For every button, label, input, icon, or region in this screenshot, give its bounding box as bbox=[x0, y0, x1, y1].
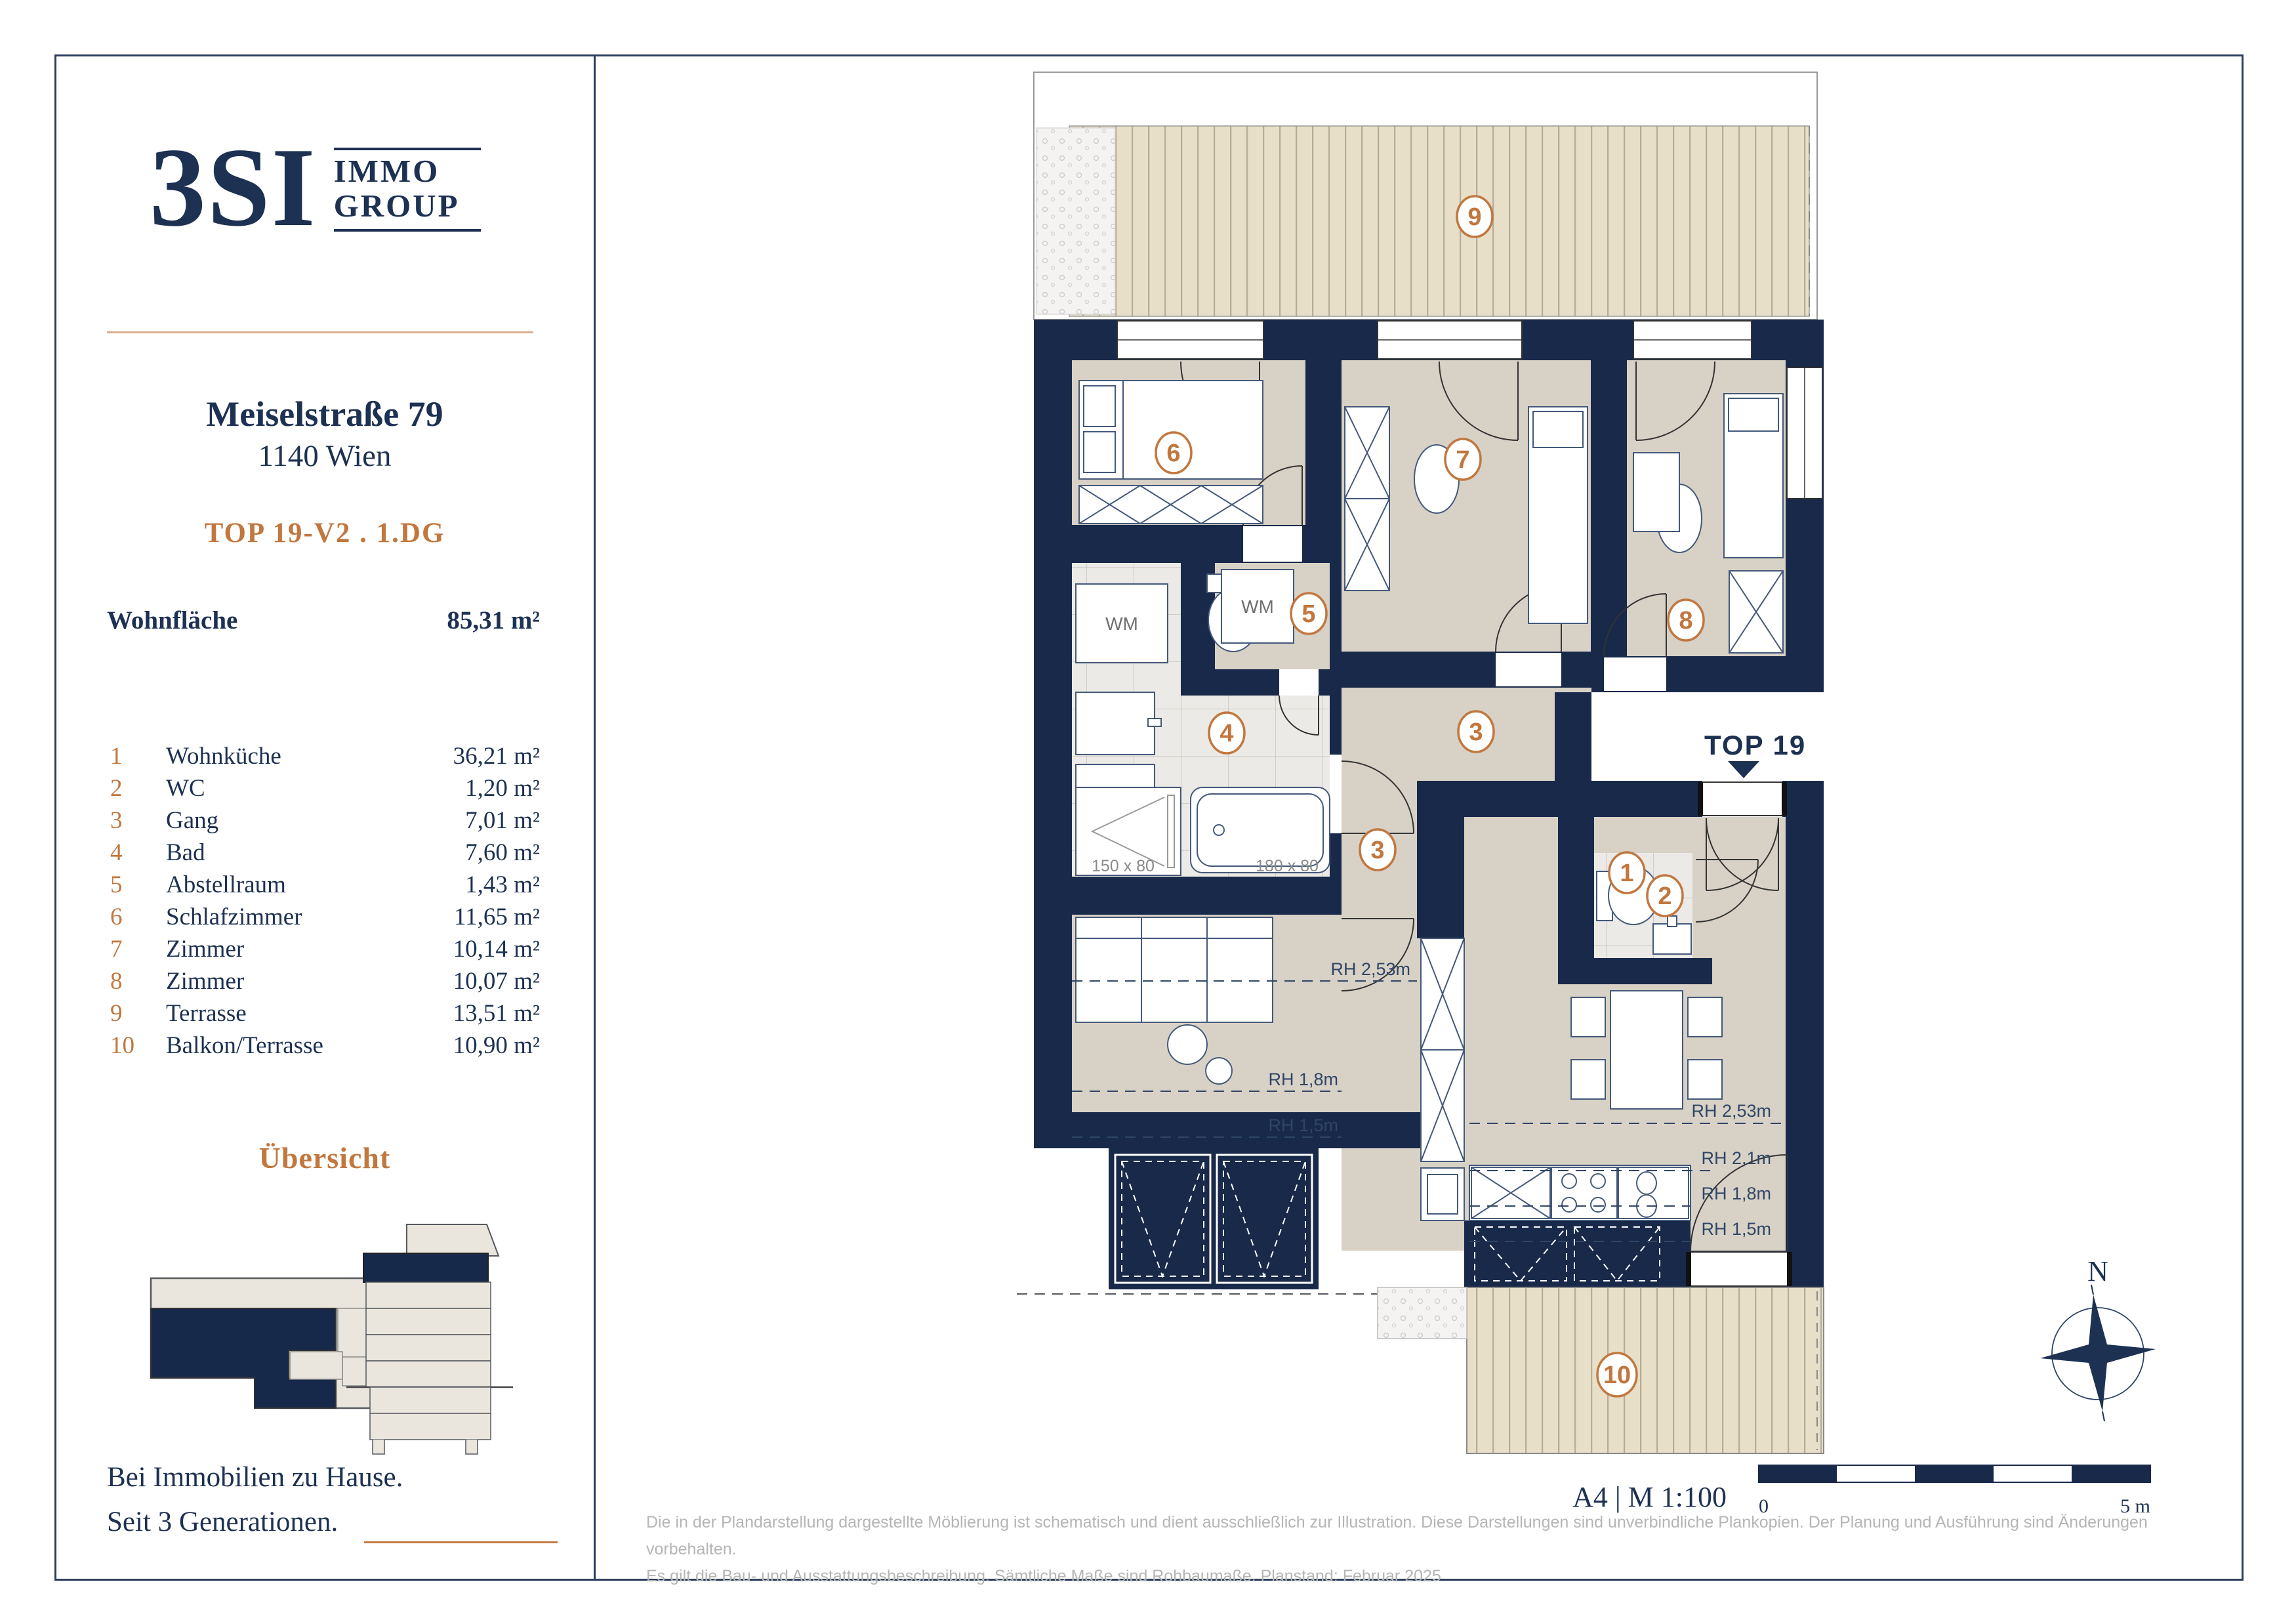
svg-text:3: 3 bbox=[1370, 837, 1384, 864]
kitchen-counter bbox=[1469, 1165, 1691, 1220]
address-line2: 1140 Wien bbox=[54, 438, 595, 474]
room-circle-4: 4 bbox=[1209, 713, 1244, 753]
company-logo: 3SI IMMO GROUP bbox=[150, 135, 481, 241]
tagline-orange-rule bbox=[364, 1541, 558, 1543]
room-row: 9Terrasse13,51 m² bbox=[110, 997, 540, 1030]
kitchen-tall-cabinets bbox=[1421, 938, 1464, 1220]
overview-floor-highlight bbox=[363, 1253, 488, 1282]
balcony-gravel-patch bbox=[1378, 1287, 1467, 1339]
tub-dimension: 180 x 80 bbox=[1256, 857, 1319, 875]
room-circle-3b: 3 bbox=[1360, 829, 1395, 870]
svg-text:1: 1 bbox=[1620, 860, 1633, 887]
wm-label-abstellraum: WM bbox=[1241, 596, 1274, 617]
overview-title: Übersicht bbox=[54, 1140, 595, 1175]
entrance-label: TOP 19 bbox=[1704, 730, 1806, 778]
room-number: 2 bbox=[110, 772, 166, 804]
svg-text:3: 3 bbox=[1469, 718, 1483, 746]
sofa bbox=[1076, 917, 1273, 1022]
logo-word-group: GROUP bbox=[334, 189, 481, 224]
wardrobe-room7 bbox=[1345, 407, 1389, 591]
room-number: 4 bbox=[110, 837, 166, 869]
format-scale-label: A4 | M 1:100 bbox=[1572, 1481, 1727, 1513]
tan-divider-rule bbox=[107, 331, 533, 333]
room-row: 6Schlafzimmer11,65 m² bbox=[110, 901, 540, 933]
svg-text:5: 5 bbox=[1302, 600, 1315, 628]
room-circle-10: 10 bbox=[1597, 1353, 1637, 1396]
room-area: 36,21 m² bbox=[396, 740, 540, 772]
room-row: 4Bad7,60 m² bbox=[110, 837, 540, 869]
floorplan-document: 3SI IMMO GROUP Meiselstraße 79 1140 Wien… bbox=[0, 0, 2296, 1624]
room-circle-3a: 3 bbox=[1458, 711, 1494, 752]
svg-text:8: 8 bbox=[1679, 607, 1692, 635]
plant-2 bbox=[1206, 1058, 1232, 1084]
room-circle-9: 9 bbox=[1457, 196, 1492, 237]
living-area-summary: Wohnfläche 85,31 m² bbox=[107, 606, 540, 635]
logo-3si-text: 3SI bbox=[150, 135, 317, 241]
rh-label: RH 2,53m bbox=[1691, 1101, 1771, 1121]
room-number: 9 bbox=[110, 997, 166, 1030]
room-row: 8Zimmer10,07 m² bbox=[110, 965, 540, 997]
terrace-9 bbox=[1034, 72, 1817, 320]
wardrobe-room6 bbox=[1079, 486, 1263, 524]
living-area-value: 85,31 m² bbox=[447, 606, 540, 635]
room-name: Gang bbox=[166, 804, 396, 837]
window-room8 bbox=[1633, 321, 1752, 359]
room-row: 2WC1,20 m² bbox=[110, 772, 540, 804]
svg-text:10: 10 bbox=[1603, 1362, 1631, 1389]
rh-label: RH 2,1m bbox=[1701, 1148, 1771, 1168]
room-area: 10,07 m² bbox=[396, 965, 540, 997]
room-circle-8: 8 bbox=[1668, 600, 1704, 640]
living-area-label: Wohnfläche bbox=[107, 606, 237, 635]
bed-room7 bbox=[1528, 407, 1588, 623]
unit-label: TOP 19-V2 . 1.DG bbox=[54, 517, 595, 549]
top19-label: TOP 19 bbox=[1704, 730, 1806, 760]
room-name: Zimmer bbox=[166, 933, 396, 965]
room-name: Terrasse bbox=[166, 997, 396, 1030]
room-area: 13,51 m² bbox=[396, 997, 540, 1030]
door-gap-room6 bbox=[1243, 526, 1302, 562]
svg-text:6: 6 bbox=[1166, 440, 1180, 467]
room-row: 7Zimmer10,14 m² bbox=[110, 933, 540, 965]
rh-label: RH 1,5m bbox=[1268, 1115, 1338, 1135]
bed-room8 bbox=[1724, 394, 1783, 558]
room-name: Bad bbox=[166, 837, 396, 869]
compass-icon: N bbox=[2040, 1255, 2156, 1421]
rh-label: RH 1,8m bbox=[1701, 1184, 1771, 1203]
floor-plan: RH 2,53m RH 1,8m RH 1,5m RH 2,53m RH 2,1… bbox=[604, 26, 2244, 1588]
window-room6 bbox=[1117, 321, 1263, 359]
room-number: 3 bbox=[110, 804, 166, 837]
brand-tagline: Bei Immobilien zu Hause. Seit 3 Generati… bbox=[107, 1455, 403, 1545]
svg-text:4: 4 bbox=[1220, 720, 1233, 747]
room-area: 1,20 m² bbox=[396, 772, 540, 804]
door-gap-room8 bbox=[1604, 657, 1666, 691]
room-number: 8 bbox=[110, 965, 166, 997]
svg-text:9: 9 bbox=[1467, 203, 1481, 231]
entrance-arrow-icon bbox=[1728, 761, 1759, 778]
logo-wordmark: IMMO GROUP bbox=[334, 148, 481, 232]
room-name: WC bbox=[166, 772, 396, 804]
shower-dimension: 150 x 80 bbox=[1092, 857, 1155, 875]
disclaimer: Die in der Plandarstellung dargestellte … bbox=[646, 1509, 2207, 1590]
room-circle-7: 7 bbox=[1445, 439, 1481, 480]
disclaimer-line2: Es gilt die Bau- und Ausstattungsbeschre… bbox=[646, 1563, 2207, 1590]
room-number: 7 bbox=[110, 933, 166, 965]
door-gap-abstellraum bbox=[1279, 669, 1319, 696]
room-circle-2: 2 bbox=[1647, 875, 1683, 916]
room-circle-1: 1 bbox=[1609, 852, 1645, 893]
room-area: 10,14 m² bbox=[396, 933, 540, 965]
room-area: 10,90 m² bbox=[396, 1030, 540, 1062]
room-area: 11,65 m² bbox=[396, 901, 540, 933]
room-area: 1,43 m² bbox=[396, 869, 540, 901]
room-row: 3Gang7,01 m² bbox=[110, 804, 540, 837]
panel-divider bbox=[594, 54, 596, 1579]
room-number: 5 bbox=[110, 869, 166, 901]
rh-label: RH 1,5m bbox=[1701, 1219, 1771, 1239]
window-room7 bbox=[1378, 321, 1522, 359]
room-row: 1Wohnküche36,21 m² bbox=[110, 740, 540, 772]
logo-rule-bottom bbox=[334, 229, 481, 232]
rh-label: RH 2,53m bbox=[1330, 959, 1410, 979]
room-list: 1Wohnküche36,21 m² 2WC1,20 m² 3Gang7,01 … bbox=[110, 740, 540, 1062]
room-number: 1 bbox=[110, 740, 166, 772]
logo-word-immo: IMMO bbox=[334, 154, 481, 189]
svg-text:7: 7 bbox=[1456, 446, 1469, 474]
entrance-door-opening bbox=[1698, 782, 1787, 816]
room-circle-6: 6 bbox=[1156, 432, 1191, 473]
room-row: 5Abstellraum1,43 m² bbox=[110, 869, 540, 901]
wm-label-bath: WM bbox=[1105, 614, 1138, 634]
room-name: Abstellraum bbox=[166, 869, 396, 901]
desk-room8 bbox=[1633, 453, 1679, 531]
address-line1: Meiselstraße 79 bbox=[54, 394, 595, 434]
door-gap-room7 bbox=[1496, 653, 1561, 686]
room-number: 6 bbox=[110, 901, 166, 933]
disclaimer-line1: Die in der Plandarstellung dargestellte … bbox=[646, 1509, 2207, 1563]
overview-building-section bbox=[346, 1224, 513, 1454]
terrace-gravel-patch bbox=[1036, 128, 1115, 314]
balcony-door-opening bbox=[1686, 1252, 1792, 1286]
tagline-line2: Seit 3 Generationen. bbox=[107, 1500, 403, 1545]
tagline-line1: Bei Immobilien zu Hause. bbox=[107, 1455, 403, 1500]
terrace-deck bbox=[1069, 126, 1809, 316]
sink-bath-1 bbox=[1076, 692, 1161, 755]
room-circle-5: 5 bbox=[1291, 593, 1326, 634]
window-room8-east bbox=[1787, 367, 1822, 499]
plant-1 bbox=[1168, 1025, 1207, 1064]
room-name: Wohnküche bbox=[166, 740, 396, 772]
room-area: 7,01 m² bbox=[396, 804, 540, 837]
wardrobe-room8 bbox=[1729, 571, 1783, 653]
room-row: 10Balkon/Terrasse10,90 m² bbox=[110, 1030, 540, 1062]
door-gap-bath bbox=[1330, 755, 1342, 833]
rh-label: RH 1,8m bbox=[1268, 1070, 1338, 1089]
room-number: 10 bbox=[110, 1030, 166, 1062]
compass-n-label: N bbox=[2087, 1255, 2108, 1287]
room-name: Balkon/Terrasse bbox=[166, 1030, 396, 1062]
room-name: Zimmer bbox=[166, 965, 396, 997]
room-area: 7,60 m² bbox=[396, 837, 540, 869]
svg-text:2: 2 bbox=[1658, 883, 1671, 910]
room-name: Schlafzimmer bbox=[166, 901, 396, 933]
overview-drawings bbox=[118, 1213, 525, 1468]
